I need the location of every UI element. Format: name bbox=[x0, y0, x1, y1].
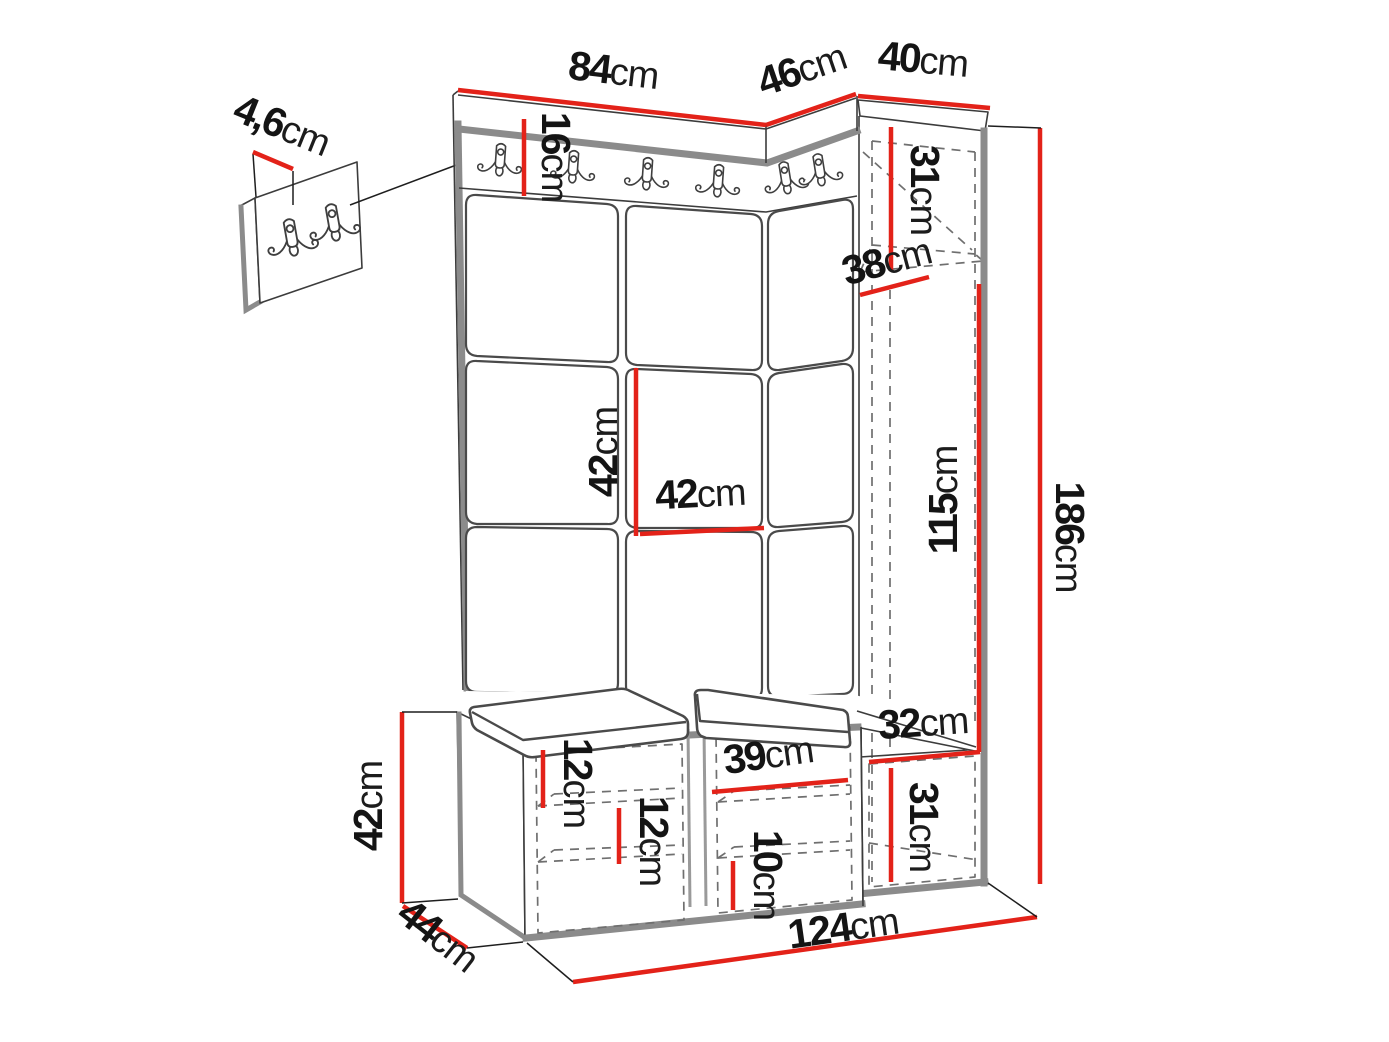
main-wall-panel bbox=[453, 91, 857, 700]
dim-label-bench-height: 42cm bbox=[345, 761, 391, 851]
panel-left-outline bbox=[453, 91, 458, 95]
dim-label-top-cabinet-width: 40cm bbox=[876, 32, 970, 86]
detail-hook-panel bbox=[240, 154, 467, 311]
dim-label-top-main-width: 84cm bbox=[566, 42, 661, 98]
dim-label-top-corner-width: 46cm bbox=[751, 32, 851, 105]
detail-leader-line bbox=[350, 161, 467, 205]
dim-label-hook-band-height: 16cm bbox=[533, 112, 579, 202]
dim-label-cabinet-top-section: 31cm bbox=[902, 145, 948, 235]
dim-label-cabinet-interior-height: 115cm bbox=[920, 446, 966, 555]
dim-label-panel-thickness: 4,6cm bbox=[227, 85, 337, 165]
upholstered-tiles bbox=[466, 195, 853, 699]
furniture-dimension-diagram: 4,6cm 84cm 46cm 40cm 16cm 31cm 38cm 42cm… bbox=[0, 0, 1389, 1042]
dim-label-bench-bottom-gap: 10cm bbox=[745, 830, 791, 920]
technical-drawing-page: 4,6cm 84cm 46cm 40cm 16cm 31cm 38cm 42cm… bbox=[0, 0, 1389, 1042]
dim-label-bench-shelf-gap-mid: 12cm bbox=[631, 796, 677, 886]
dim-line-panel-thickness bbox=[253, 152, 293, 169]
dim-label-total-height: 186cm bbox=[1047, 481, 1093, 592]
dim-label-right-door-height: 31cm bbox=[901, 782, 947, 872]
detail-panel-front-face bbox=[255, 162, 362, 303]
dim-label-tile-width: 42cm bbox=[654, 468, 747, 519]
dim-label-tile-height: 42cm bbox=[580, 407, 626, 497]
dim-label-bench-shelf-gap-top: 12cm bbox=[555, 738, 601, 828]
thickness-tick-left bbox=[253, 154, 256, 197]
dim-label-right-compartment-width: 32cm bbox=[876, 696, 969, 748]
